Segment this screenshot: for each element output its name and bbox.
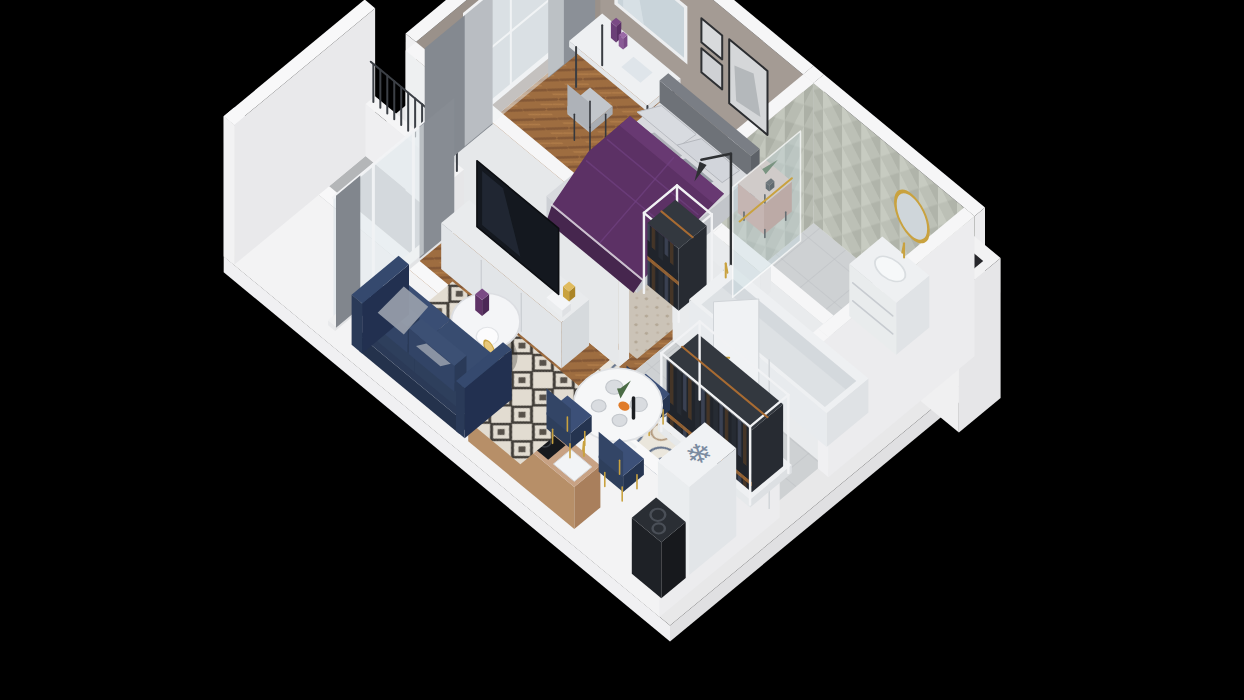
desk-vase-small — [619, 31, 628, 49]
kitchen-sink-gold-faucet — [583, 442, 584, 456]
apartment-3d-floor-plan-canvas: ❄ — [0, 0, 1244, 700]
coffee-table-vase — [475, 288, 489, 316]
apartment-3d-floor-plan-stage: ❄ — [0, 0, 1244, 700]
